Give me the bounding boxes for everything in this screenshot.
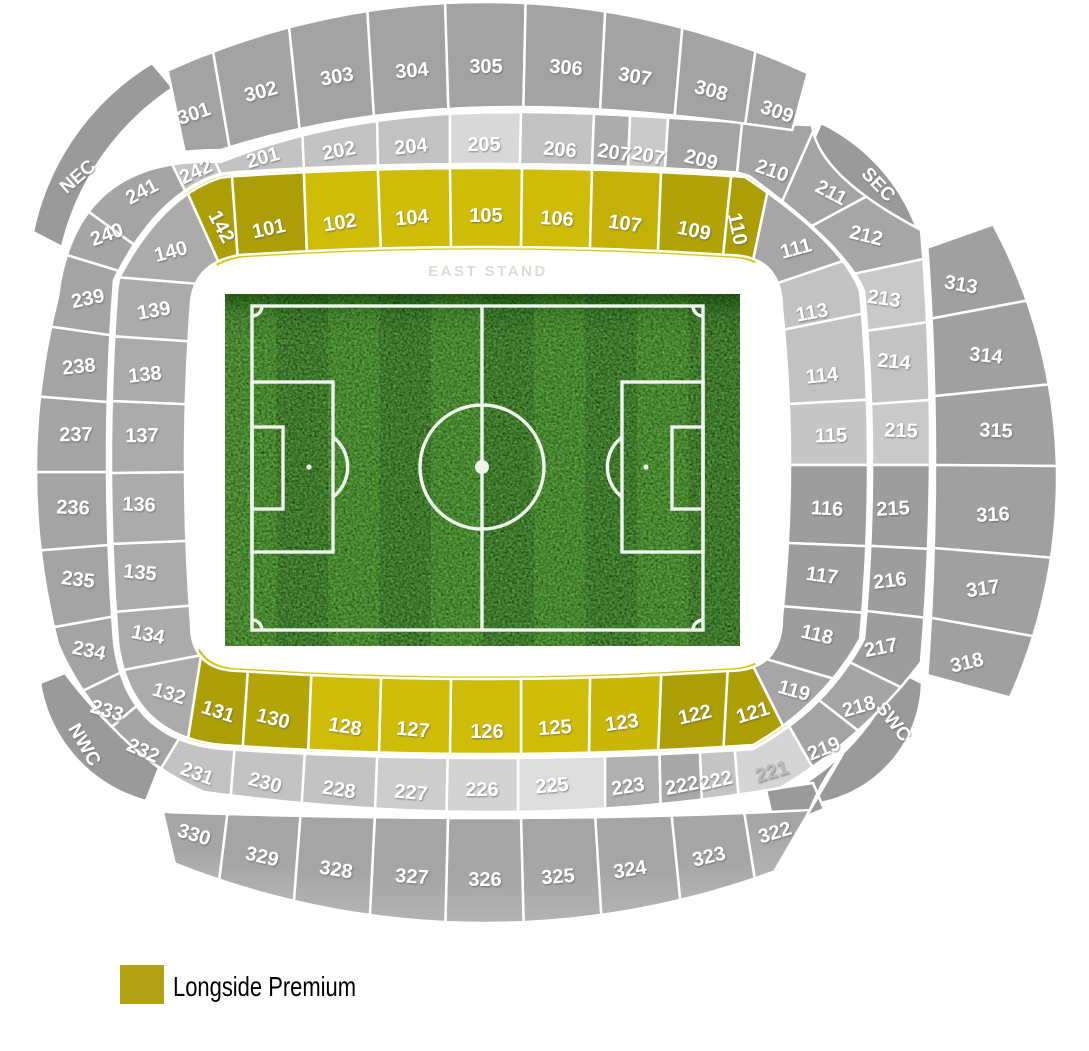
svg-text:215: 215 <box>884 419 918 442</box>
svg-text:Longside Premium: Longside Premium <box>173 971 356 1002</box>
svg-text:115: 115 <box>814 424 847 447</box>
svg-text:135: 135 <box>122 560 157 585</box>
svg-text:204: 204 <box>393 134 429 159</box>
svg-text:205: 205 <box>467 134 500 156</box>
svg-text:104: 104 <box>394 206 430 231</box>
svg-text:213: 213 <box>866 286 902 312</box>
svg-text:304: 304 <box>394 59 430 84</box>
svg-text:326: 326 <box>468 869 501 891</box>
svg-text:216: 216 <box>872 568 908 594</box>
svg-text:315: 315 <box>979 419 1013 442</box>
svg-text:106: 106 <box>540 207 575 231</box>
svg-text:327: 327 <box>395 865 430 889</box>
svg-text:114: 114 <box>805 363 840 388</box>
svg-text:215: 215 <box>876 497 910 521</box>
svg-text:306: 306 <box>548 56 583 81</box>
svg-text:137: 137 <box>125 425 159 448</box>
svg-text:123: 123 <box>604 710 640 736</box>
svg-text:125: 125 <box>538 716 573 740</box>
svg-text:235: 235 <box>60 567 96 593</box>
svg-text:238: 238 <box>61 354 96 379</box>
svg-text:138: 138 <box>127 362 162 387</box>
svg-text:226: 226 <box>465 779 498 801</box>
svg-text:227: 227 <box>393 781 428 806</box>
svg-text:136: 136 <box>122 493 156 516</box>
svg-text:107: 107 <box>607 211 643 237</box>
svg-text:314: 314 <box>968 343 1004 368</box>
svg-text:105: 105 <box>469 205 502 227</box>
svg-text:116: 116 <box>810 497 843 521</box>
svg-text:225: 225 <box>534 774 569 799</box>
svg-text:236: 236 <box>56 496 90 519</box>
svg-text:127: 127 <box>395 718 430 743</box>
svg-text:317: 317 <box>965 576 1001 602</box>
svg-text:237: 237 <box>59 424 93 447</box>
svg-text:117: 117 <box>804 563 839 589</box>
svg-text:316: 316 <box>976 503 1010 527</box>
svg-text:325: 325 <box>541 865 576 889</box>
svg-text:305: 305 <box>469 56 502 78</box>
svg-text:214: 214 <box>876 350 912 375</box>
svg-text:206: 206 <box>542 138 577 163</box>
svg-text:EAST STAND: EAST STAND <box>428 263 548 280</box>
svg-text:126: 126 <box>470 721 503 743</box>
